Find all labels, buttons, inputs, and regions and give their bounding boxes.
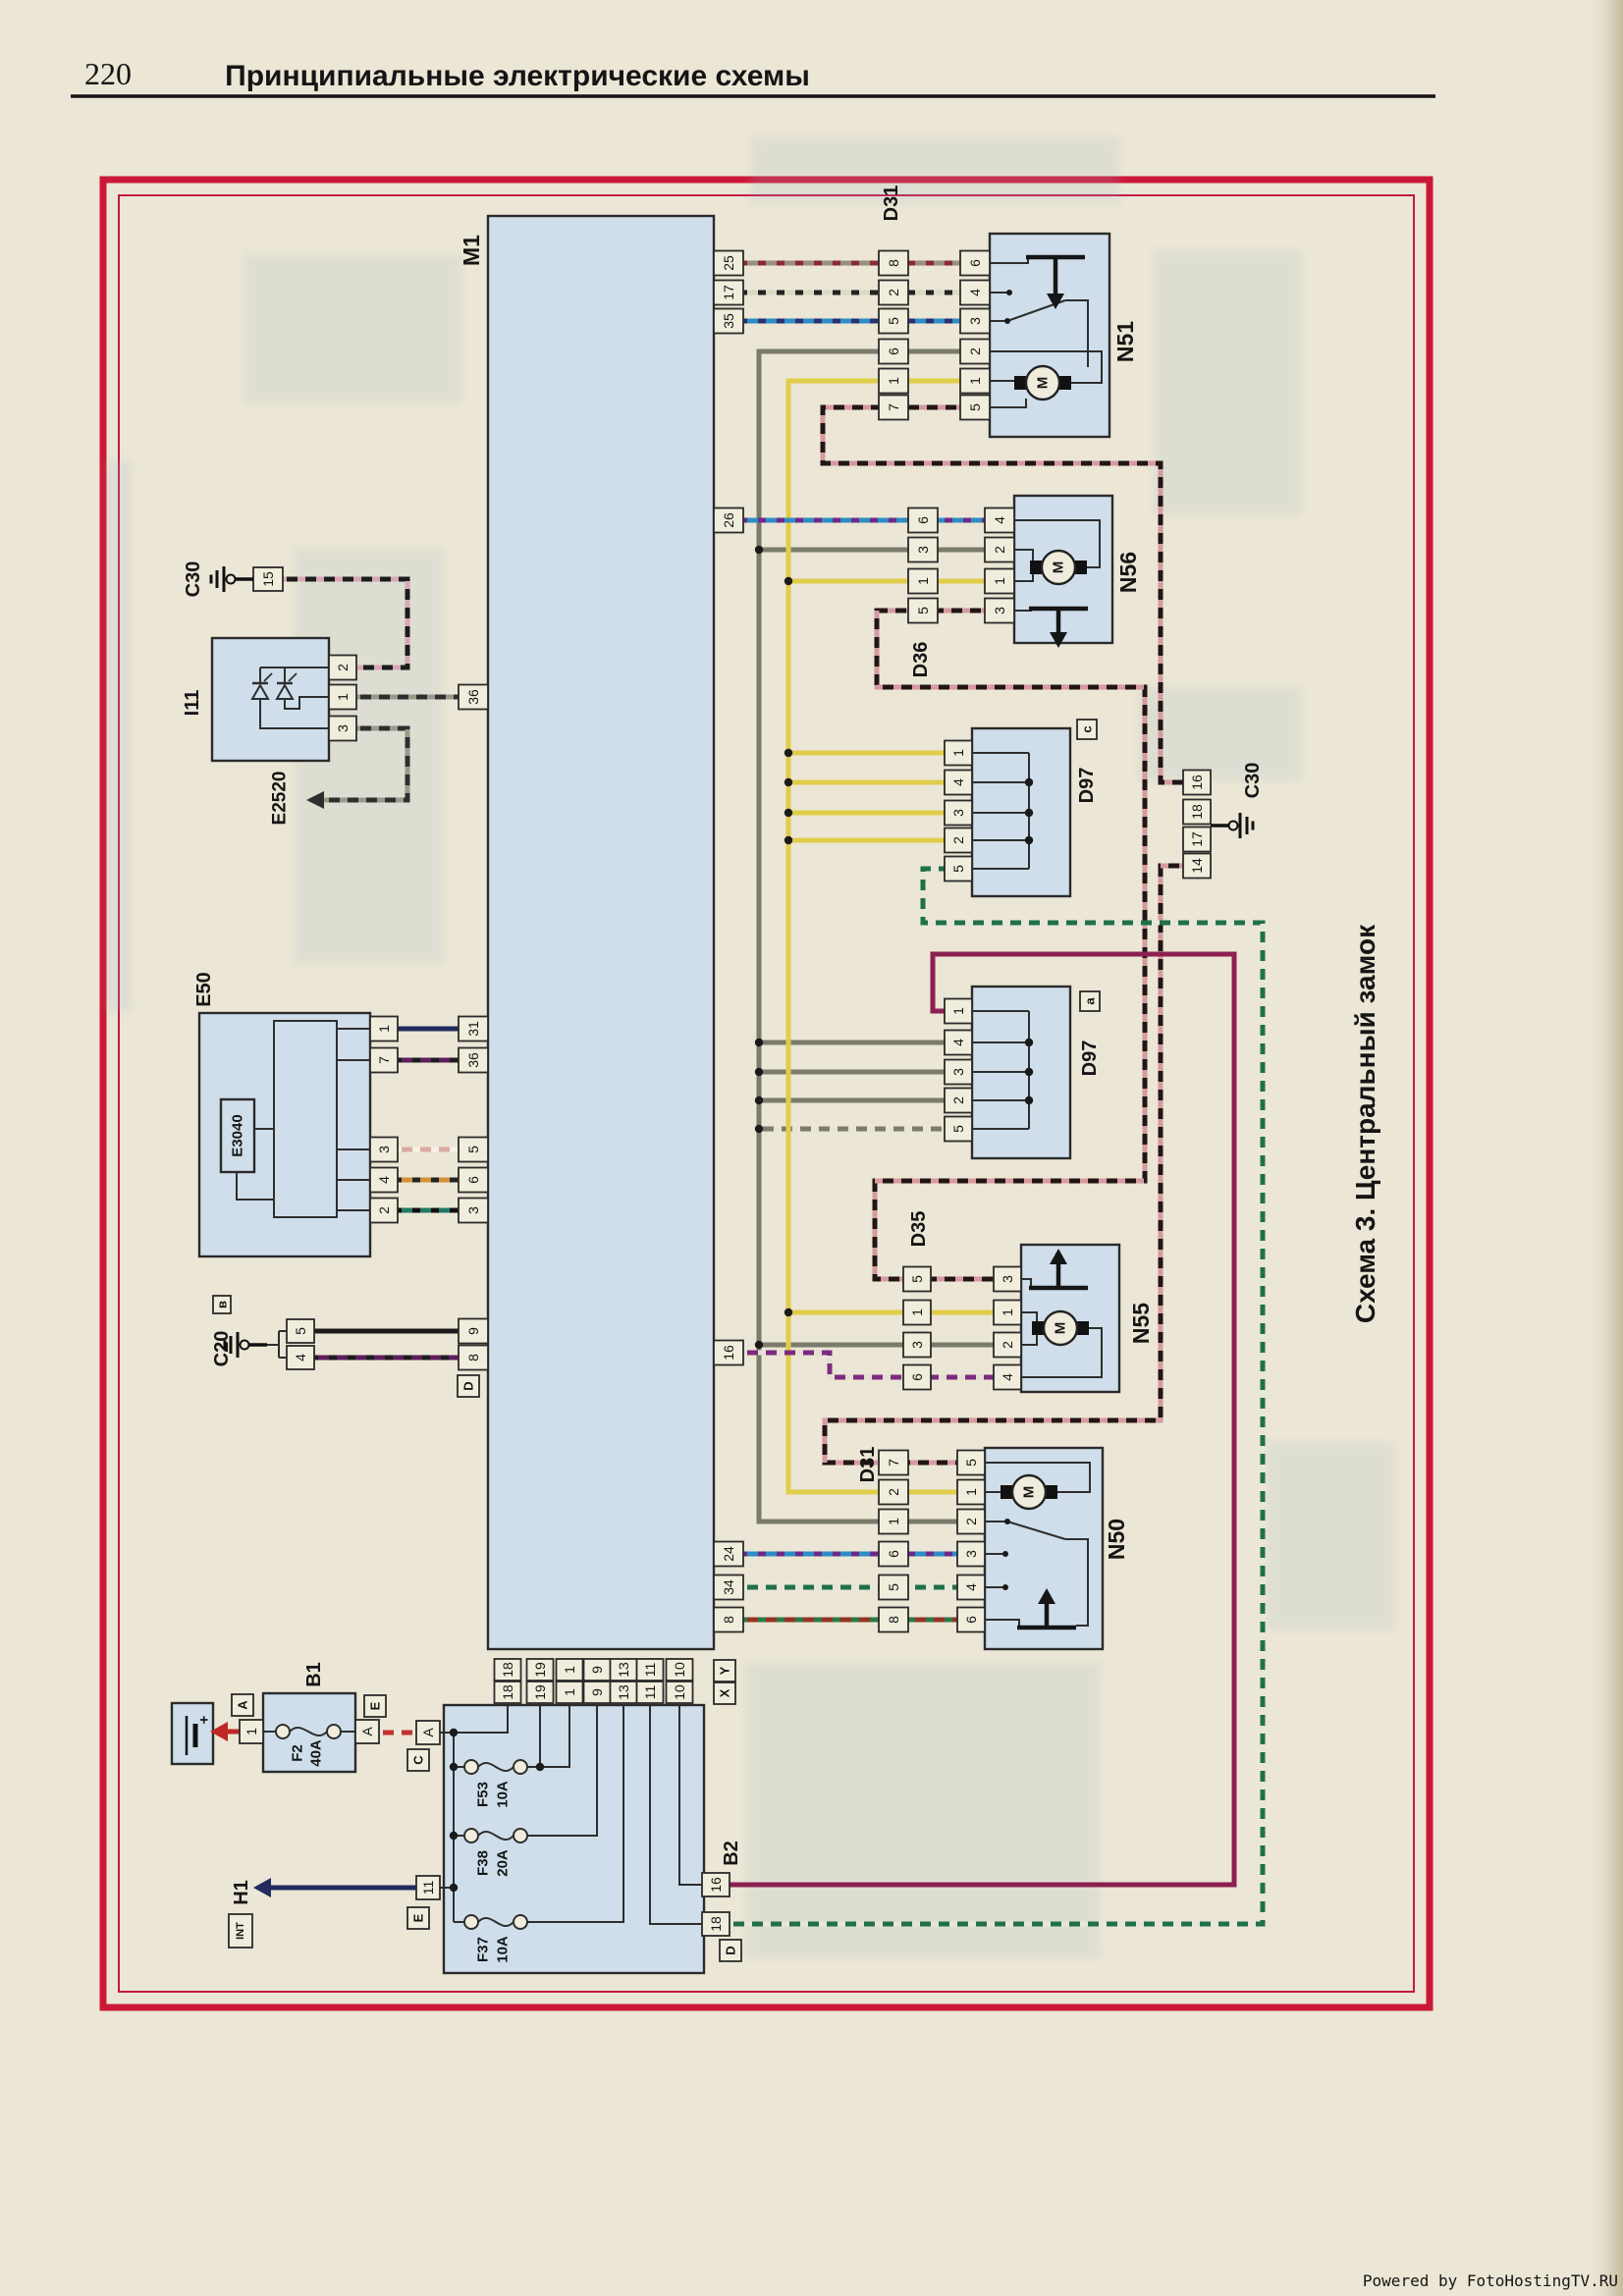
pin-label: 19 bbox=[532, 1684, 548, 1700]
pin-label: 24 bbox=[721, 1546, 736, 1562]
pin-label: 5 bbox=[950, 865, 966, 873]
junction-dot bbox=[784, 1308, 792, 1316]
contact-dot bbox=[1004, 1519, 1010, 1524]
component-label: D36 bbox=[910, 642, 932, 678]
pin-label: 1 bbox=[886, 1518, 901, 1525]
component-label: N51 bbox=[1112, 321, 1138, 362]
pin-label: 16 bbox=[721, 1345, 736, 1361]
pin-label: 5 bbox=[909, 1275, 925, 1283]
pin-label: 6 bbox=[886, 1550, 901, 1558]
pin-label: 5 bbox=[950, 1125, 966, 1133]
ghost-bleed bbox=[245, 255, 461, 402]
component-label: D97 bbox=[1079, 1041, 1101, 1077]
ground-icon bbox=[211, 566, 253, 592]
pin-label: 3 bbox=[915, 546, 931, 554]
pin-label: 5 bbox=[967, 403, 983, 411]
pin-label: 1 bbox=[967, 377, 983, 385]
header: 220 Принципиальные электрические схемы bbox=[71, 56, 1435, 96]
component-label: F53 bbox=[475, 1782, 492, 1807]
pin-label: 6 bbox=[465, 1176, 481, 1184]
pin-label: 10 bbox=[672, 1662, 687, 1678]
pin-label: 8 bbox=[465, 1354, 481, 1362]
pin-label: 16 bbox=[708, 1877, 724, 1893]
pin-label: 18 bbox=[500, 1662, 515, 1678]
pin-label: 6 bbox=[909, 1373, 925, 1381]
pin-label: 7 bbox=[376, 1056, 392, 1064]
pin-label: 1 bbox=[915, 577, 931, 585]
junction-dot bbox=[1025, 836, 1033, 844]
pin-label: 4 bbox=[1000, 1373, 1015, 1381]
pin-label: 4 bbox=[967, 289, 983, 296]
junction-dot bbox=[755, 1039, 763, 1046]
junction-dot bbox=[1025, 809, 1033, 817]
letter-box-label: c bbox=[1080, 725, 1095, 732]
page-title: Принципиальные электрические схемы bbox=[225, 60, 810, 92]
pin-label: 3 bbox=[376, 1146, 392, 1153]
pin-label: 3 bbox=[335, 724, 351, 732]
n51-actuator bbox=[990, 234, 1109, 437]
wire-stripe-purple_white bbox=[743, 1353, 994, 1377]
component-label: E2520 bbox=[270, 772, 291, 826]
component-label: 10A bbox=[495, 1936, 512, 1963]
component-label: D35 bbox=[908, 1211, 930, 1248]
component-label: 40A bbox=[308, 1739, 325, 1767]
component-label: I11 bbox=[182, 690, 203, 717]
contact-dot bbox=[1002, 1584, 1008, 1590]
h1-arrow-icon bbox=[253, 1878, 271, 1897]
junction-dot bbox=[450, 1832, 458, 1840]
junction-dot bbox=[755, 546, 763, 554]
contact-dot bbox=[1002, 1551, 1008, 1557]
pin-label: 9 bbox=[465, 1327, 481, 1335]
pin-label: 8 bbox=[721, 1616, 736, 1624]
pin-label: 5 bbox=[293, 1327, 308, 1335]
pin-label: 17 bbox=[721, 285, 736, 300]
i11-module bbox=[212, 638, 329, 761]
letter-box-label: D bbox=[461, 1381, 476, 1390]
contact-dot bbox=[1004, 318, 1010, 324]
letter-box-label: X bbox=[718, 1688, 732, 1697]
pin-label: 1 bbox=[909, 1308, 925, 1316]
ghost-bleed bbox=[1267, 1443, 1394, 1629]
pin-label: 36 bbox=[465, 689, 481, 705]
component-label: D31 bbox=[857, 1447, 879, 1483]
pin-label: 2 bbox=[886, 1488, 901, 1496]
pin-label: 6 bbox=[967, 259, 983, 267]
pin-label: 1 bbox=[335, 693, 351, 701]
pin-label: 31 bbox=[465, 1021, 481, 1037]
pin-label: 5 bbox=[915, 607, 931, 614]
battery-plus: + bbox=[196, 1715, 213, 1724]
pin-label: 4 bbox=[950, 1039, 966, 1046]
pin-label: 1 bbox=[1000, 1308, 1015, 1316]
pin-label: 8 bbox=[886, 1616, 901, 1624]
pin-label: 1 bbox=[950, 749, 966, 757]
letter-box-label: E bbox=[368, 1701, 383, 1710]
ground-icon bbox=[1211, 813, 1253, 838]
component-label: D97 bbox=[1076, 768, 1098, 804]
motor-label: M bbox=[1021, 1486, 1038, 1499]
ghost-bleed bbox=[1154, 250, 1301, 515]
pin-label: 26 bbox=[721, 512, 736, 528]
wire-purple_white bbox=[743, 1353, 994, 1377]
pin-label: 2 bbox=[992, 546, 1007, 554]
pin-label: 3 bbox=[963, 1550, 979, 1558]
component-label: N56 bbox=[1115, 552, 1141, 593]
pin-label: 10 bbox=[672, 1684, 687, 1700]
pin-label: 6 bbox=[886, 347, 901, 355]
letter-box-label: INT bbox=[235, 1922, 246, 1940]
page-edge-shadow bbox=[1586, 0, 1623, 2296]
pin-label: 2 bbox=[335, 664, 351, 671]
pin-label: 4 bbox=[293, 1354, 308, 1362]
letter-box-label: в bbox=[215, 1301, 230, 1308]
junction-dot bbox=[1025, 1039, 1033, 1046]
junction-dot bbox=[755, 1096, 763, 1104]
pin-label: 16 bbox=[1189, 774, 1205, 790]
scheme-title: Схема 3. Центральный замок bbox=[1350, 924, 1380, 1323]
b2-fusebox bbox=[444, 1705, 704, 1973]
pin-label: 14 bbox=[1189, 858, 1205, 874]
scanned-page: 220 Принципиальные электрические схемы 2… bbox=[0, 0, 1623, 2296]
pin-label: 2 bbox=[950, 1096, 966, 1104]
component-label: D31 bbox=[881, 186, 902, 222]
pin-label: 6 bbox=[963, 1616, 979, 1624]
pin-label: 1 bbox=[376, 1025, 392, 1033]
pin-label: 3 bbox=[950, 1068, 966, 1076]
component-label: H1 bbox=[231, 1880, 252, 1905]
component-label: B2 bbox=[721, 1841, 742, 1866]
letter-box-label: a bbox=[1083, 997, 1098, 1005]
pin-label: 5 bbox=[963, 1459, 979, 1467]
pin-label: 1 bbox=[950, 1007, 966, 1015]
component-label: C30 bbox=[183, 561, 204, 598]
junction-dot bbox=[784, 809, 792, 817]
pin-label: 18 bbox=[1189, 804, 1205, 820]
junction-dot bbox=[755, 1341, 763, 1349]
junction-dot bbox=[1025, 1096, 1033, 1104]
component-label: E3040 bbox=[230, 1114, 246, 1156]
pin-label: 35 bbox=[721, 313, 736, 329]
pin-label: 3 bbox=[992, 607, 1007, 614]
pin-label: 18 bbox=[708, 1916, 724, 1932]
ghost-bleed bbox=[1139, 687, 1301, 780]
pin-label: 3 bbox=[967, 317, 983, 325]
watermark: Powered by FotoHostingTV.RU bbox=[1363, 2271, 1618, 2290]
pin-label: 2 bbox=[886, 289, 901, 296]
pin-label: A bbox=[359, 1727, 375, 1736]
junction-dot bbox=[1025, 778, 1033, 786]
pin-label: 7 bbox=[886, 403, 901, 411]
component-label: N50 bbox=[1104, 1519, 1129, 1560]
junction-dot bbox=[784, 836, 792, 844]
pin-label: 8 bbox=[886, 259, 901, 267]
junction-dot bbox=[536, 1763, 544, 1771]
junction-dot bbox=[450, 1763, 458, 1771]
junction-dot bbox=[755, 1125, 763, 1133]
component-label: N55 bbox=[1128, 1303, 1154, 1344]
motor-label: M bbox=[1053, 1322, 1069, 1335]
contact-dot bbox=[1006, 290, 1012, 295]
component-label: E50 bbox=[193, 972, 215, 1007]
pin-label: 1 bbox=[963, 1488, 979, 1496]
ghost-bleed bbox=[106, 461, 132, 1011]
pin-label: 11 bbox=[642, 1663, 658, 1678]
pin-label: 15 bbox=[260, 571, 276, 587]
pin-label: 34 bbox=[721, 1579, 736, 1595]
pin-label: 36 bbox=[465, 1052, 481, 1068]
junction-dot bbox=[450, 1884, 458, 1892]
wiring-schematic: 220 Принципиальные электрические схемы 2… bbox=[0, 0, 1623, 2296]
pin-label: 25 bbox=[721, 255, 736, 271]
component-label: M1 bbox=[459, 235, 484, 266]
pin-label: 2 bbox=[963, 1518, 979, 1525]
pin-label: 3 bbox=[1000, 1275, 1015, 1283]
pin-label: 1 bbox=[562, 1666, 577, 1674]
component-label: 10A bbox=[495, 1781, 512, 1808]
junction-dot bbox=[784, 577, 792, 585]
motor-label: M bbox=[1051, 561, 1067, 574]
pin-label: 1 bbox=[243, 1728, 259, 1735]
ghost-bleed bbox=[751, 137, 1119, 204]
junction-dot bbox=[784, 778, 792, 786]
junction-dot bbox=[1025, 1068, 1033, 1076]
pin-label: 5 bbox=[886, 1583, 901, 1591]
pin-label: 4 bbox=[376, 1176, 392, 1184]
component-label: C30 bbox=[1242, 763, 1264, 799]
pin-label: 5 bbox=[886, 317, 901, 325]
pin-label: 3 bbox=[950, 809, 966, 817]
pin-label: 13 bbox=[616, 1684, 631, 1700]
letter-box-label: D bbox=[724, 1946, 738, 1954]
pin-label: 11 bbox=[642, 1685, 658, 1700]
pin-label: 4 bbox=[963, 1583, 979, 1591]
component-label: 20A bbox=[495, 1849, 512, 1877]
pin-label: 4 bbox=[992, 516, 1007, 524]
letter-box-label: Y bbox=[718, 1666, 732, 1675]
letter-box-label: C bbox=[411, 1755, 426, 1765]
junction-dot bbox=[450, 1729, 458, 1736]
pin-label: 9 bbox=[589, 1666, 605, 1674]
motor-label: M bbox=[1035, 377, 1052, 390]
pin-label: 4 bbox=[950, 778, 966, 786]
pin-label: 7 bbox=[886, 1459, 901, 1467]
pin-label: 1 bbox=[562, 1688, 577, 1696]
pin-label: 19 bbox=[532, 1662, 548, 1678]
junction-dot bbox=[784, 749, 792, 757]
component-label: F38 bbox=[475, 1850, 492, 1876]
wire-stripe-black_red bbox=[875, 611, 1145, 1279]
battery bbox=[172, 1703, 213, 1764]
pin-label: 2 bbox=[376, 1206, 392, 1214]
letter-box-label: A bbox=[236, 1700, 250, 1710]
pin-label: 13 bbox=[616, 1662, 631, 1678]
pin-label: 3 bbox=[909, 1341, 925, 1349]
pin-label: 11 bbox=[420, 1881, 436, 1896]
pin-label: 9 bbox=[589, 1688, 605, 1696]
pin-label: 1 bbox=[886, 377, 901, 385]
pin-label: A bbox=[420, 1728, 436, 1737]
pin-label: 1 bbox=[992, 577, 1007, 585]
component-label: F2 bbox=[290, 1744, 306, 1762]
m1-unit bbox=[488, 216, 714, 1649]
pin-label: 6 bbox=[915, 516, 931, 524]
component-label: B1 bbox=[303, 1662, 325, 1687]
letter-box-label: E bbox=[411, 1913, 426, 1922]
pin-label: 2 bbox=[950, 836, 966, 844]
ghost-bleed bbox=[746, 1664, 1100, 1958]
pin-label: 2 bbox=[1000, 1341, 1015, 1349]
component-label: F37 bbox=[475, 1937, 492, 1962]
pin-label: 17 bbox=[1189, 831, 1205, 847]
pin-label: 3 bbox=[465, 1206, 481, 1214]
junction-dot bbox=[755, 1068, 763, 1076]
pin-label: 18 bbox=[500, 1684, 515, 1700]
pin-label: 5 bbox=[465, 1146, 481, 1153]
pin-label: 2 bbox=[967, 347, 983, 355]
page-number: 220 bbox=[84, 56, 132, 91]
